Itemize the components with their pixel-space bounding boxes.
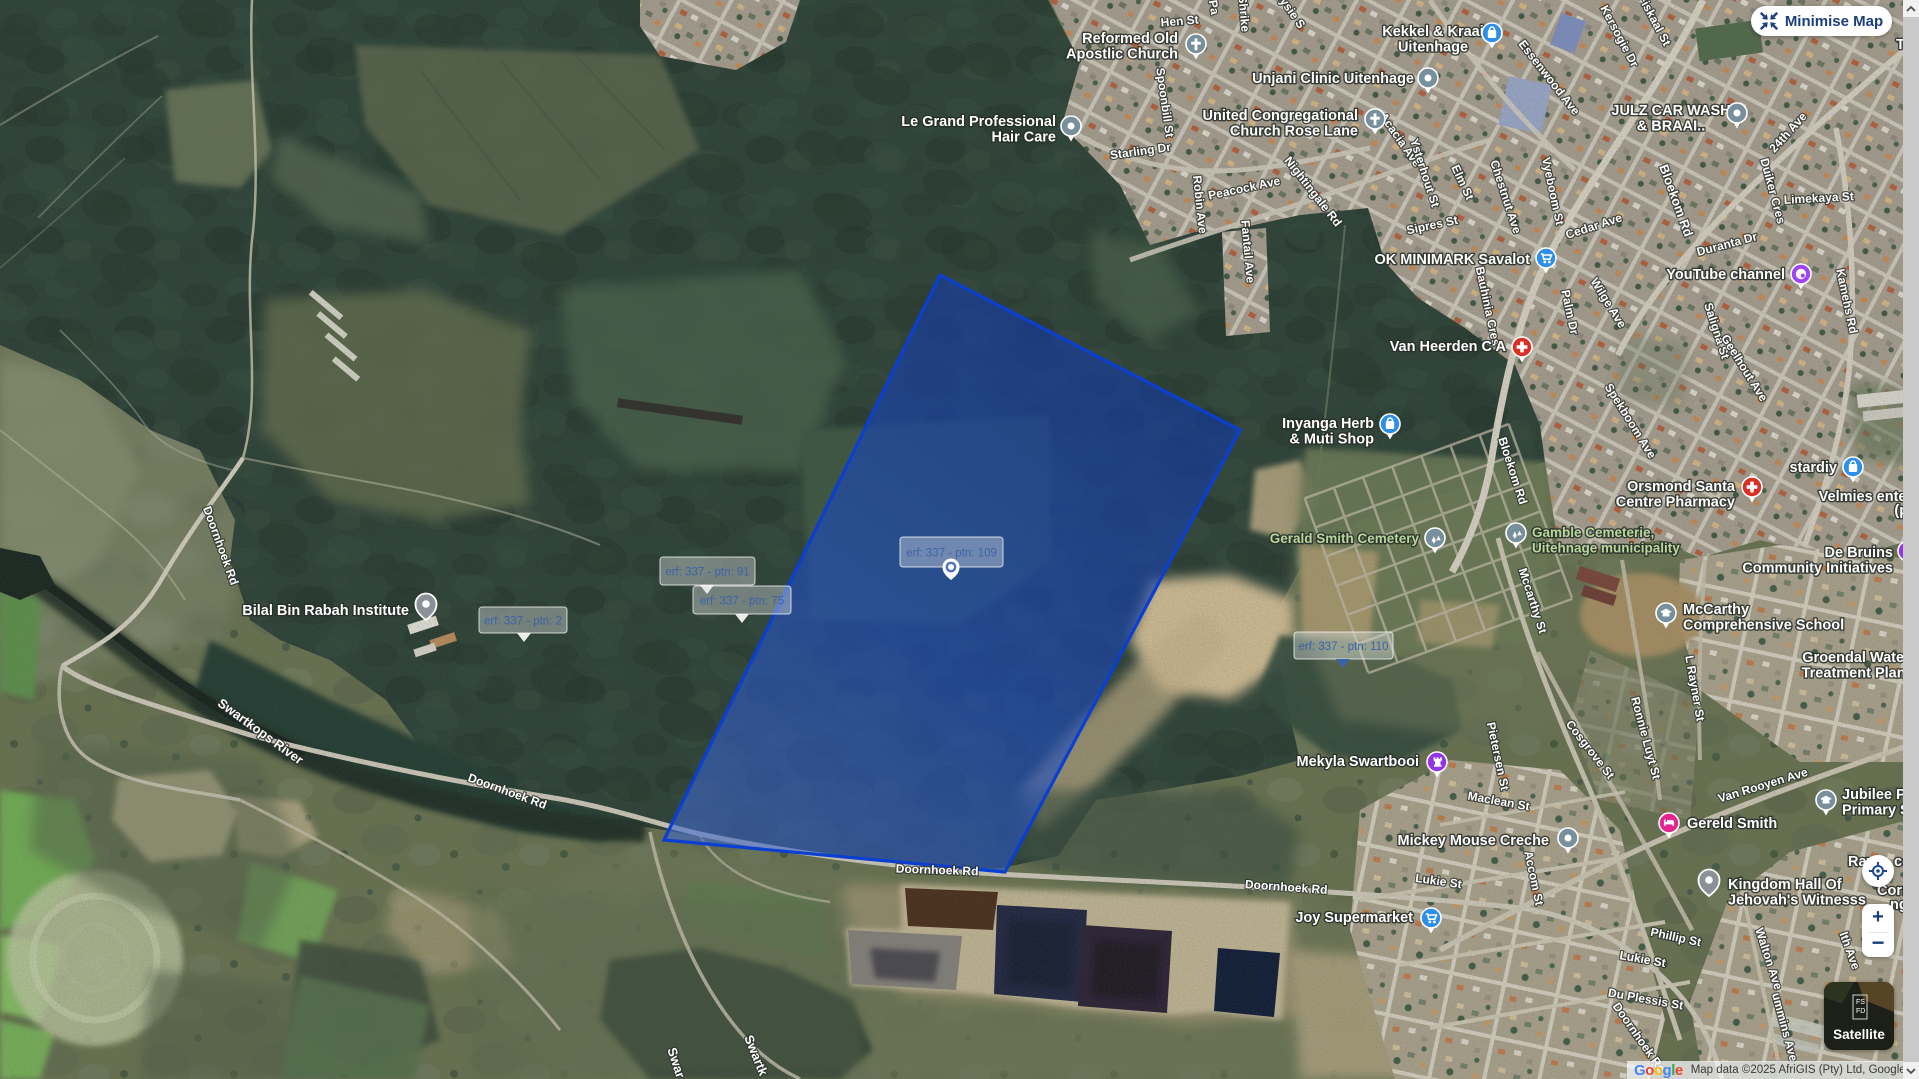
svg-text:Satellite: Satellite bbox=[1833, 1027, 1885, 1042]
svg-text:Pa: Pa bbox=[1206, 0, 1222, 16]
svg-text:FS: FS bbox=[1856, 999, 1865, 1006]
svg-text:YouTube channel: YouTube channel bbox=[1666, 267, 1785, 283]
svg-text:Comprehensive School: Comprehensive School bbox=[1683, 618, 1844, 634]
svg-text:Uitenhage: Uitenhage bbox=[1398, 40, 1468, 56]
svg-text:Treatment Plant: Treatment Plant bbox=[1802, 666, 1911, 682]
svg-text:erf: 337 - ptn: 75: erf: 337 - ptn: 75 bbox=[700, 596, 784, 608]
svg-text:Groendal Water: Groendal Water bbox=[1802, 650, 1910, 666]
svg-text:erf: 337 - ptn: 2: erf: 337 - ptn: 2 bbox=[484, 616, 562, 628]
svg-text:Community Initiatives: Community Initiatives bbox=[1742, 561, 1893, 577]
svg-text:Reformed Old: Reformed Old bbox=[1082, 31, 1178, 47]
svg-text:Doornhoek Rd: Doornhoek Rd bbox=[896, 862, 979, 879]
svg-text:& BRAAI..: & BRAAI.. bbox=[1637, 119, 1705, 135]
svg-text:Gerald Smith Cemetery: Gerald Smith Cemetery bbox=[1270, 531, 1420, 546]
svg-text:erf: 337 - ptn: 109: erf: 337 - ptn: 109 bbox=[906, 548, 997, 560]
svg-text:Apostlic Church: Apostlic Church bbox=[1066, 47, 1178, 63]
svg-text:Church Rose Lane: Church Rose Lane bbox=[1230, 124, 1358, 140]
svg-text:Kekkel & Kraai: Kekkel & Kraai bbox=[1382, 24, 1484, 40]
svg-text:erf: 337 - ptn: 110: erf: 337 - ptn: 110 bbox=[1299, 641, 1389, 653]
svg-text:Van Heerden C A: Van Heerden C A bbox=[1390, 339, 1507, 355]
svg-text:Unjani Clinic Uitenhage: Unjani Clinic Uitenhage bbox=[1252, 71, 1414, 87]
svg-text:stardiy: stardiy bbox=[1789, 460, 1837, 476]
svg-text:Kingdom Hall Of: Kingdom Hall Of bbox=[1728, 877, 1842, 893]
svg-text:erf: 337 - ptn: 91: erf: 337 - ptn: 91 bbox=[665, 567, 749, 579]
svg-text:Gereld Smith: Gereld Smith bbox=[1687, 816, 1777, 832]
svg-text:Le Grand Professional: Le Grand Professional bbox=[901, 114, 1056, 130]
svg-text:& Muti Shop: & Muti Shop bbox=[1289, 432, 1374, 448]
svg-text:Bilal Bin Rabah Institute: Bilal Bin Rabah Institute bbox=[242, 603, 409, 619]
svg-text:Inyanga Herb: Inyanga Herb bbox=[1282, 416, 1374, 432]
svg-text:Jehovah's Witnesss: Jehovah's Witnesss bbox=[1728, 893, 1866, 909]
svg-text:Mickey Mouse Creche: Mickey Mouse Creche bbox=[1397, 833, 1549, 849]
svg-text:Gamble Cemeterie,: Gamble Cemeterie, bbox=[1532, 525, 1654, 540]
svg-text:OK MINIMARK Savalot: OK MINIMARK Savalot bbox=[1375, 252, 1531, 268]
svg-text:De Bruins: De Bruins bbox=[1825, 545, 1894, 561]
svg-text:Orsmond Santa: Orsmond Santa bbox=[1627, 479, 1736, 495]
svg-text:McCarthy: McCarthy bbox=[1683, 602, 1749, 618]
svg-text:Centre Pharmacy: Centre Pharmacy bbox=[1616, 495, 1735, 511]
svg-text:Mekyla Swartbooi: Mekyla Swartbooi bbox=[1297, 754, 1419, 770]
svg-text:United Congregational: United Congregational bbox=[1203, 108, 1358, 124]
svg-text:Hair Care: Hair Care bbox=[992, 130, 1056, 146]
svg-text:Joy Supermarket: Joy Supermarket bbox=[1295, 910, 1413, 926]
svg-text:JULZ CAR WASH: JULZ CAR WASH bbox=[1611, 103, 1730, 119]
svg-text:FD: FD bbox=[1856, 1008, 1865, 1015]
svg-text:Uitehnage municipality: Uitehnage municipality bbox=[1532, 541, 1680, 556]
